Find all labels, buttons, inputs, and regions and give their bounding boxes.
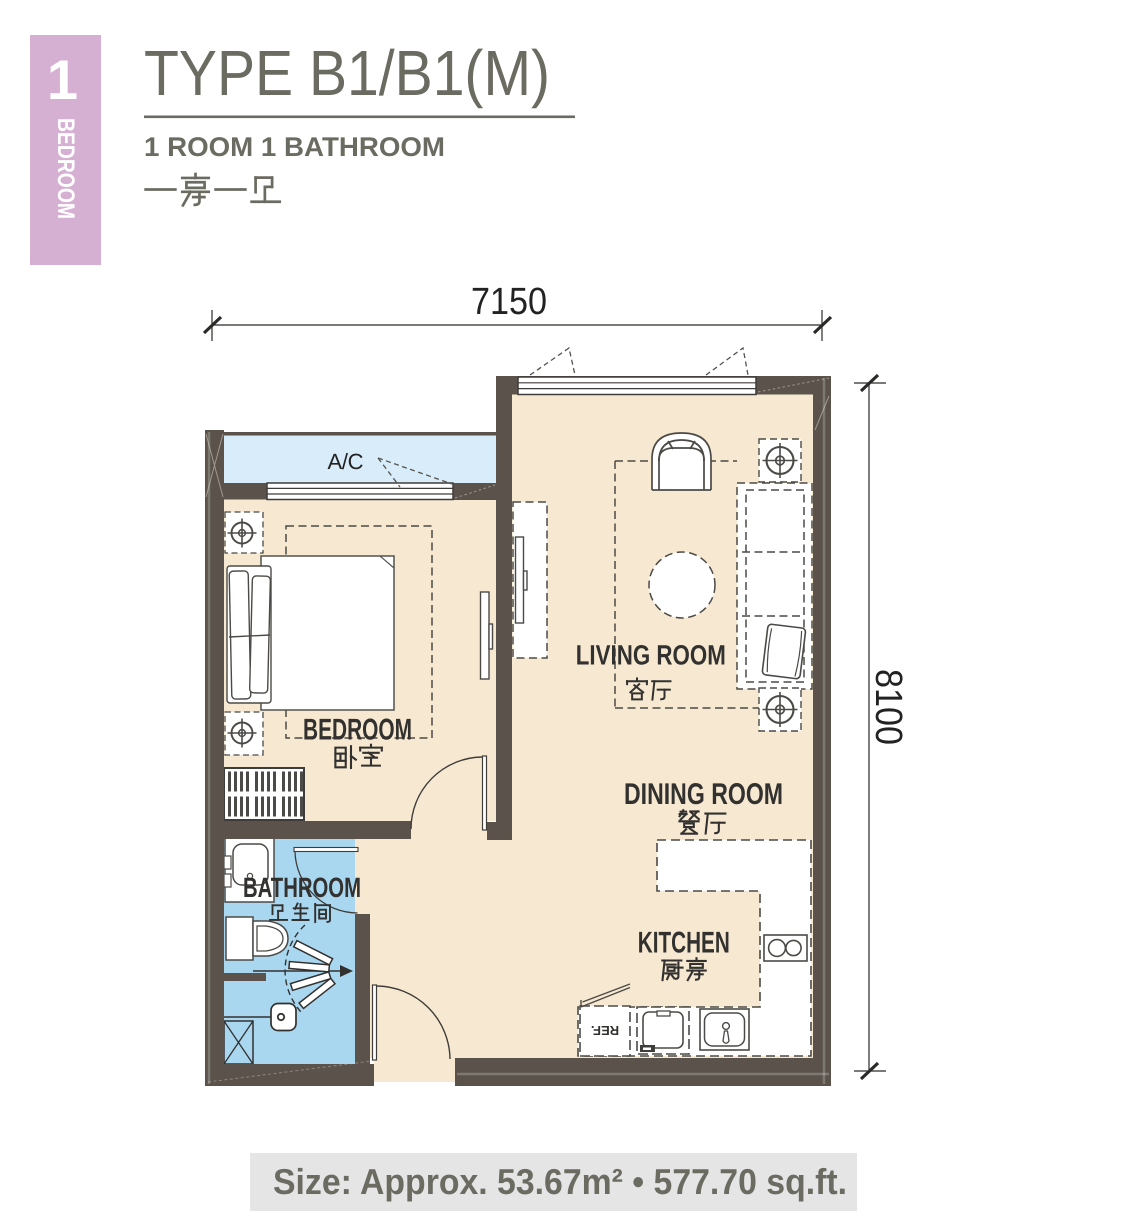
svg-text:BEDROOM: BEDROOM bbox=[52, 118, 79, 219]
svg-text:REF.: REF. bbox=[591, 1023, 619, 1038]
svg-text:A/C: A/C bbox=[328, 449, 364, 474]
svg-text:DINING ROOM: DINING ROOM bbox=[624, 778, 783, 811]
svg-text:TYPE B1/B1(M): TYPE B1/B1(M) bbox=[144, 37, 550, 109]
svg-text:1: 1 bbox=[47, 48, 78, 111]
svg-text:7150: 7150 bbox=[471, 281, 547, 323]
svg-text:8100: 8100 bbox=[867, 669, 909, 745]
svg-text:KITCHEN: KITCHEN bbox=[638, 927, 730, 960]
svg-text:BATHROOM: BATHROOM bbox=[243, 872, 361, 903]
svg-text:Size: Approx. 53.67m² • 577.: Size: Approx. 53.67m² • 577.70 sq.ft. bbox=[273, 1161, 847, 1202]
svg-text:LIVING ROOM: LIVING ROOM bbox=[576, 640, 726, 671]
svg-text:BEDROOM: BEDROOM bbox=[303, 714, 412, 747]
svg-text:1 ROOM 1 BATHROOM: 1 ROOM 1 BATHROOM bbox=[144, 132, 445, 162]
